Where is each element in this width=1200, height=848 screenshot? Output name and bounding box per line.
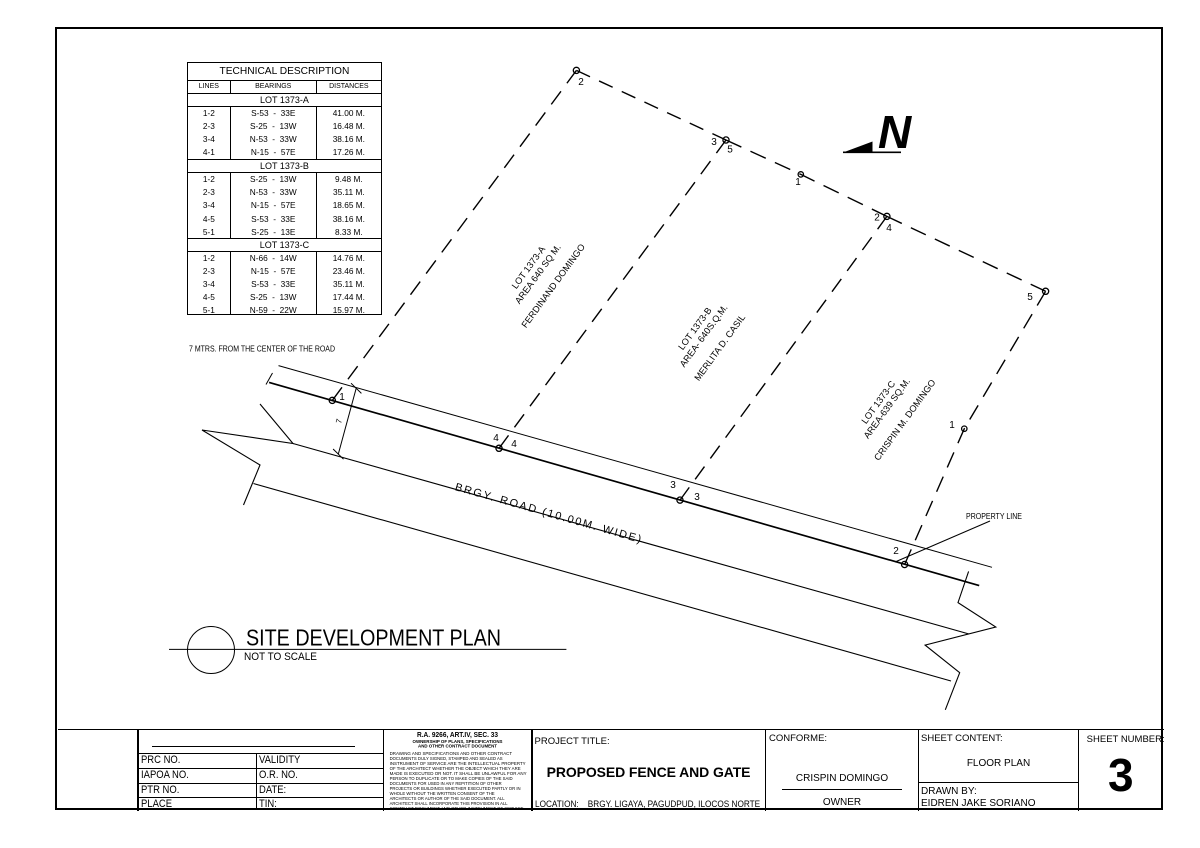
svg-text:PROPERTY LINE: PROPERTY LINE [966,511,1022,521]
svg-text:PERSON TO DUPLICATE OR TO MAKE: PERSON TO DUPLICATE OR TO MAKE COPIES OF… [390,776,514,781]
svg-text:NOT TO SCALE: NOT TO SCALE [244,651,317,663]
svg-text:AND OTHER CONTRACT DOCUMENT: AND OTHER CONTRACT DOCUMENT [418,743,497,749]
svg-text:DRAWING AND SPECIFICATIONS AND: DRAWING AND SPECIFICATIONS AND OTHER CON… [390,751,513,756]
svg-text:2: 2 [874,213,880,224]
svg-text:BRGY. ROAD (10.00M. WIDE): BRGY. ROAD (10.00M. WIDE) [454,481,643,545]
svg-text:DOCUMENTS DULY SIGNED, STAMPED: DOCUMENTS DULY SIGNED, STAMPED AND SEALE… [390,756,503,761]
svg-text:2: 2 [578,77,584,88]
svg-text:3: 3 [694,492,700,503]
svg-text:N: N [878,106,912,158]
svg-text:1: 1 [949,420,955,431]
svg-text:7: 7 [334,417,344,424]
svg-text:PROJECTS OR BUILDINGS WHETHER: PROJECTS OR BUILDINGS WHETHER EXECUTED P… [390,786,521,791]
svg-text:DOCUMENTS FOR USED IN ANY REPI: DOCUMENTS FOR USED IN ANY REPITITION OF … [390,781,503,786]
svg-text:SITE DEVELOPMENT PLAN: SITE DEVELOPMENT PLAN [246,625,501,651]
svg-text:3: 3 [670,480,676,491]
svg-text:4: 4 [511,439,517,450]
svg-text:ARCHITECTS OR AUTHOR OF THE SA: ARCHITECTS OR AUTHOR OF THE SAID DOCUMEN… [390,796,505,801]
svg-text:R.A. 9266, ART.IV, SEC. 33: R.A. 9266, ART.IV, SEC. 33 [417,732,498,739]
svg-text:3: 3 [711,137,717,148]
svg-text:INSTRUMENT OF SERVICE ARE THE: INSTRUMENT OF SERVICE ARE THE INTELLECTU… [390,761,527,766]
svg-text:7 MTRS. FROM THE CENTER OF THE: 7 MTRS. FROM THE CENTER OF THE ROAD [189,344,335,354]
svg-text:4: 4 [886,223,892,234]
svg-text:5: 5 [727,145,733,156]
svg-text:OWNERSHIP OF PLANS, SPECIFICAT: OWNERSHIP OF PLANS, SPECIFICATIONS [413,738,504,744]
svg-text:ARCHITECT SHALL INCORPORATE TH: ARCHITECT SHALL INCORPORATE THIS PROVISI… [390,801,508,806]
svg-text:1: 1 [339,392,345,403]
svg-text:MADE IS EXECUTED OR NOT. IT SH: MADE IS EXECUTED OR NOT. IT SHALL BE UNL… [390,771,528,776]
svg-text:OF THE ARCHITECT WHETHER THE O: OF THE ARCHITECT WHETHER THE OBJECT WHIC… [390,766,521,771]
svg-text:WHOLE WITHOUT THE WRITTEN CONS: WHOLE WITHOUT THE WRITTEN CONSENT OF THE [390,791,495,796]
svg-text:2: 2 [893,546,899,557]
svg-text:4: 4 [493,433,499,444]
svg-text:1: 1 [795,177,801,188]
svg-text:CONTRACT DOCUMENT AND OTHER IN: CONTRACT DOCUMENT AND OTHER INSTRUMENT O… [390,806,525,811]
svg-text:5: 5 [1027,292,1033,303]
